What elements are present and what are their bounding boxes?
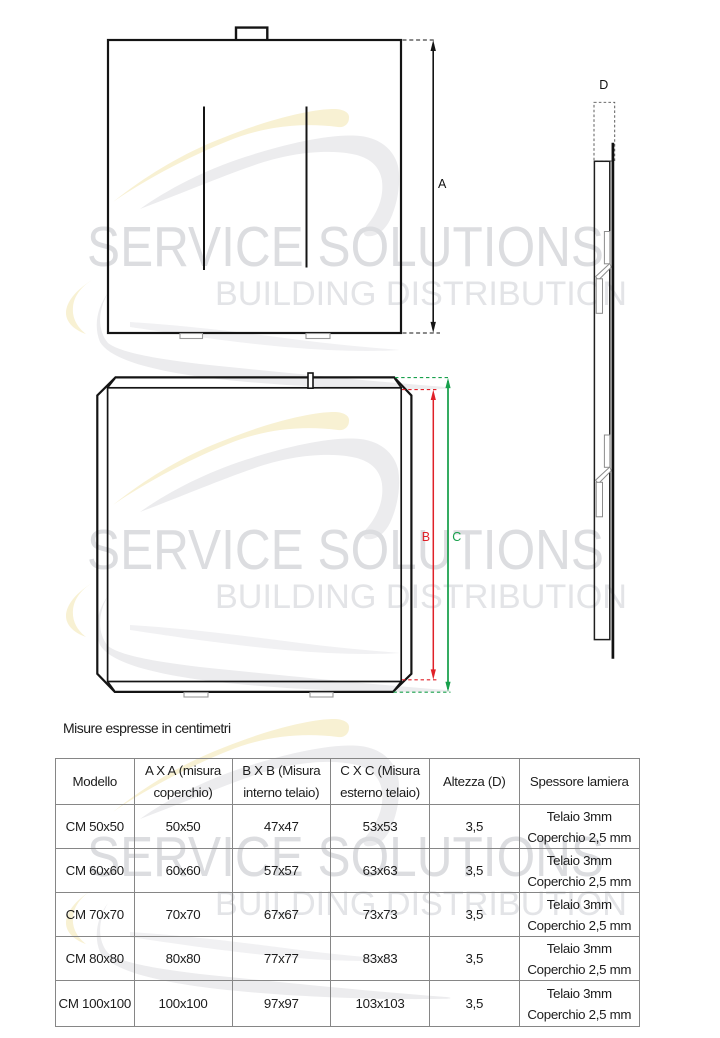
svg-text:B: B [422, 530, 430, 544]
svg-text:A: A [438, 177, 447, 191]
svg-text:C: C [452, 530, 461, 544]
svg-text:D: D [599, 78, 608, 92]
